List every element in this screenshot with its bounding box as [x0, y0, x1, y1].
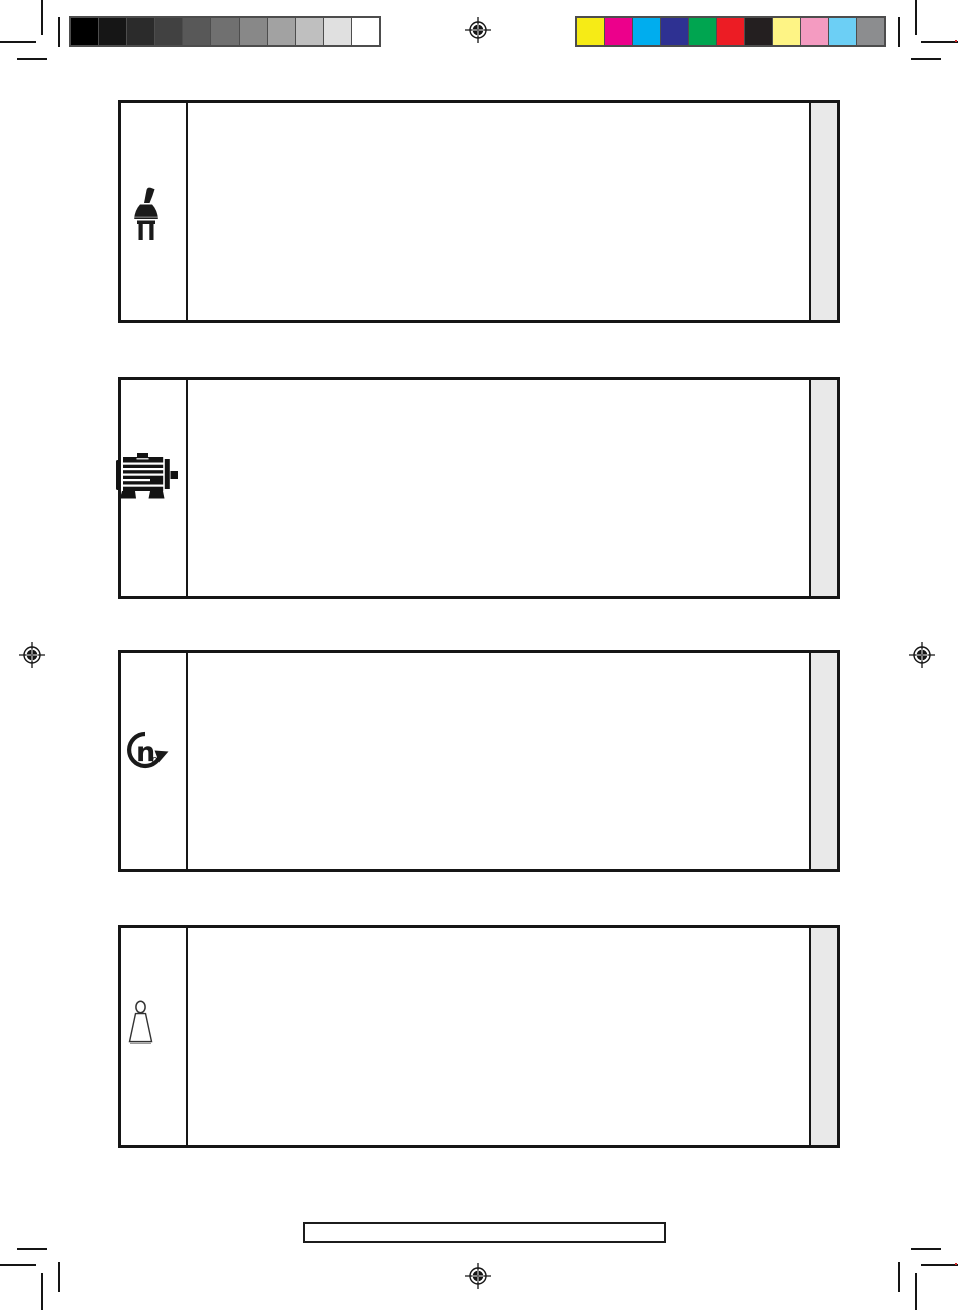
calibration-swatch	[126, 18, 154, 45]
symbol-table-row: n 0	[118, 650, 840, 872]
calibration-swatch	[800, 18, 828, 45]
symbol-description-cell	[188, 380, 809, 596]
calibration-swatch	[98, 18, 126, 45]
crop-mark-line	[915, 0, 917, 35]
crop-mark-line	[0, 1264, 36, 1266]
color-calibration-bar	[575, 16, 886, 47]
scanned-page: n 0	[0, 0, 958, 1310]
symbol-description-cell	[188, 103, 809, 320]
crop-mark-line	[41, 1273, 43, 1310]
calibration-swatch	[744, 18, 772, 45]
crop-mark-line	[58, 17, 60, 47]
power-plug-icon	[132, 187, 160, 241]
crop-mark-line	[898, 1262, 900, 1292]
calibration-swatch	[577, 18, 604, 45]
calibration-swatch	[295, 18, 323, 45]
calibration-swatch	[632, 18, 660, 45]
calibration-swatch	[856, 18, 884, 45]
crop-mark-line	[58, 1262, 60, 1292]
crop-mark-line	[0, 41, 36, 43]
calibration-swatch	[604, 18, 632, 45]
registration-mark-icon	[465, 17, 491, 43]
symbol-icon-cell: n 0	[121, 653, 186, 869]
crop-mark-line	[921, 41, 958, 43]
speed-symbol-subscript: 0	[152, 756, 158, 767]
registration-mark-icon	[19, 642, 45, 668]
row-side-strip	[811, 380, 837, 596]
calibration-swatch	[182, 18, 210, 45]
calibration-swatch	[267, 18, 295, 45]
symbol-icon-cell	[121, 928, 186, 1145]
red-print-dot	[955, 1263, 957, 1265]
no-load-speed-icon: n 0	[125, 726, 173, 774]
crop-mark-line	[898, 17, 900, 47]
crop-mark-line	[911, 1248, 941, 1250]
calibration-swatch	[772, 18, 800, 45]
symbol-table-row	[118, 377, 840, 599]
electric-motor-icon	[116, 453, 178, 499]
symbol-icon-cell	[121, 103, 186, 320]
red-print-dot	[955, 40, 957, 42]
row-side-strip	[811, 928, 837, 1145]
grayscale-calibration-bar	[69, 16, 381, 47]
row-side-strip	[811, 103, 837, 320]
calibration-swatch	[716, 18, 744, 45]
registration-mark-icon	[465, 1263, 491, 1289]
crop-mark-line	[911, 58, 941, 60]
calibration-swatch	[323, 18, 351, 45]
registration-mark-icon	[909, 642, 935, 668]
calibration-swatch	[71, 18, 98, 45]
symbol-table-row	[118, 100, 840, 323]
crop-mark-line	[17, 58, 47, 60]
symbol-table-row	[118, 925, 840, 1148]
weight-icon	[127, 1000, 154, 1046]
symbol-description-cell	[188, 928, 809, 1145]
calibration-swatch	[828, 18, 856, 45]
crop-mark-line	[915, 1273, 917, 1310]
crop-mark-line	[17, 1248, 47, 1250]
calibration-swatch	[351, 18, 379, 45]
calibration-swatch	[660, 18, 688, 45]
calibration-swatch	[239, 18, 267, 45]
crop-mark-line	[41, 0, 43, 35]
calibration-swatch	[688, 18, 716, 45]
calibration-swatch	[210, 18, 238, 45]
footer-note-box	[303, 1222, 666, 1243]
crop-mark-line	[921, 1264, 958, 1266]
symbol-description-cell	[188, 653, 809, 869]
row-side-strip	[811, 653, 837, 869]
calibration-swatch	[154, 18, 182, 45]
symbol-icon-cell	[121, 380, 186, 596]
